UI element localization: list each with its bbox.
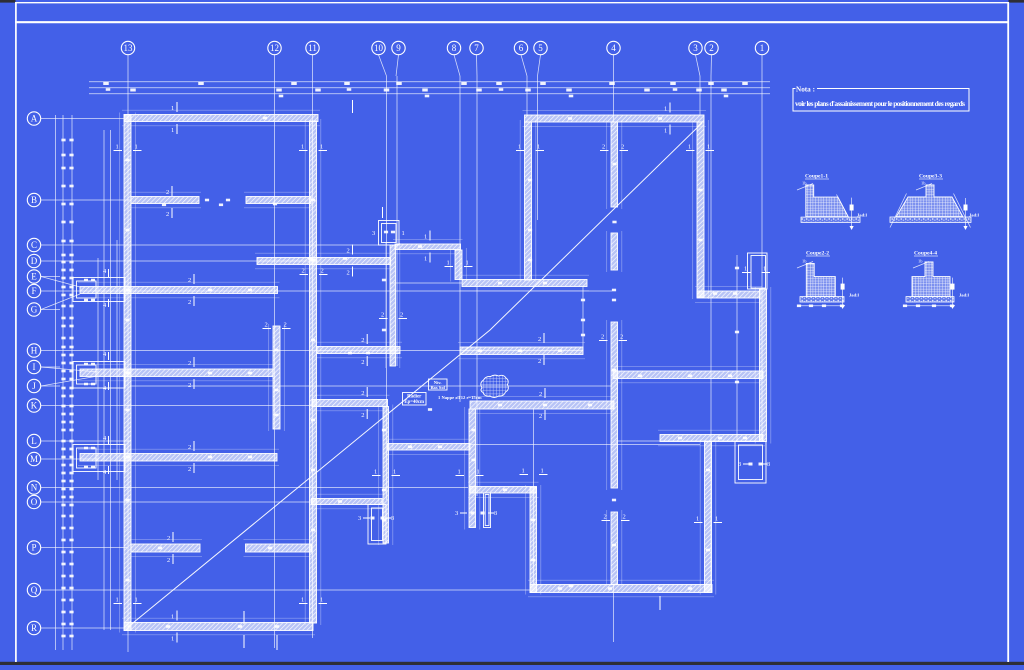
svg-text:1: 1 [171,636,174,643]
svg-text:Coupe1-1: Coupe1-1 [805,174,828,180]
svg-text:3: 3 [358,515,361,522]
svg-text:1: 1 [715,516,718,523]
svg-text:2: 2 [166,189,169,196]
svg-text:Coupe3-3: Coupe3-3 [919,174,942,180]
svg-text:Bas Sol: Bas Sol [430,385,445,390]
svg-text:3: 3 [455,510,458,517]
svg-text:1: 1 [402,230,405,237]
svg-text:1: 1 [537,144,540,151]
svg-text:3: 3 [372,230,375,237]
svg-text:1: 1 [320,597,323,604]
svg-text:J: J [32,381,36,391]
svg-text:2: 2 [347,248,350,255]
svg-text:Jad:l: Jad:l [969,213,980,218]
svg-text:4: 4 [611,43,616,53]
svg-text:1: 1 [171,127,174,134]
svg-text:2: 2 [709,43,714,53]
svg-text:1: 1 [424,256,427,263]
svg-text:2: 2 [188,444,191,451]
svg-text:2: 2 [620,334,623,341]
svg-text:2: 2 [539,391,542,398]
svg-text:2: 2 [321,268,324,275]
svg-text:1: 1 [116,144,119,151]
svg-text:voir les plans d'assainissemen: voir les plans d'assainissement pour le … [795,99,965,108]
svg-text:Coupe4-4: Coupe4-4 [914,251,937,257]
svg-text:2: 2 [167,535,170,542]
svg-text:3: 3 [738,461,741,468]
svg-text:2: 2 [539,413,542,420]
svg-text:9: 9 [396,43,401,53]
svg-text:1: 1 [744,266,747,273]
svg-text:Jad:l: Jad:l [857,213,868,218]
svg-text:7: 7 [474,43,479,53]
svg-text:1: 1 [447,260,450,267]
svg-text:10: 10 [374,43,384,53]
svg-text:1: 1 [477,469,480,476]
svg-text:2: 2 [166,211,169,218]
svg-text:2: 2 [400,312,403,319]
svg-text:H: H [31,346,38,356]
svg-text:2: 2 [188,299,191,306]
svg-text:2: 2 [167,557,170,564]
svg-text:Q: Q [31,585,38,595]
svg-text:1: 1 [374,469,377,476]
svg-text:1: 1 [664,128,667,135]
svg-text:1: 1 [518,144,521,151]
svg-text:2: 2 [538,336,541,343]
svg-text:1: 1 [664,106,667,113]
svg-text:1: 1 [393,469,396,476]
svg-text:F: F [31,286,36,296]
svg-text:B: B [31,195,37,205]
svg-text:1: 1 [116,597,119,604]
svg-text:8: 8 [452,43,457,53]
svg-text:Ep=40cm: Ep=40cm [404,400,424,405]
svg-text:1: 1 [541,468,544,475]
svg-text:2: 2 [623,514,626,521]
svg-text:Coupe2-2: Coupe2-2 [806,251,829,257]
svg-text:N: N [31,483,38,493]
svg-text:1 Nappe øT12 e=15cm: 1 Nappe øT12 e=15cm [438,395,482,400]
svg-text:1: 1 [522,468,525,475]
svg-text:1: 1 [696,516,699,523]
svg-text:2: 2 [188,466,191,473]
svg-text:2: 2 [604,514,607,521]
svg-text:2: 2 [265,322,268,329]
svg-text:3: 3 [693,43,698,53]
svg-text:1: 1 [171,614,174,621]
svg-text:P: P [31,543,36,553]
svg-text:R: R [31,623,37,633]
svg-text:12: 12 [270,43,279,53]
svg-text:1: 1 [458,469,461,476]
svg-text:2: 2 [188,360,191,367]
svg-text:D: D [31,256,38,266]
svg-text:2: 2 [538,358,541,365]
svg-text:2: 2 [302,268,305,275]
svg-text:E: E [31,272,37,282]
svg-text:2: 2 [381,312,384,319]
svg-text:K: K [31,401,38,411]
svg-text:I: I [33,362,36,372]
svg-text:6: 6 [519,43,524,53]
svg-text:1: 1 [424,234,427,241]
svg-text:1: 1 [320,144,323,151]
svg-text:Radier: Radier [407,395,422,400]
svg-text:C: C [31,240,37,250]
svg-text:Jad:l: Jad:l [959,293,970,298]
svg-text:A: A [31,114,38,124]
svg-text:1: 1 [301,597,304,604]
svg-text:2: 2 [621,144,624,151]
svg-text:2: 2 [188,277,191,284]
svg-text:M: M [30,454,38,464]
svg-text:G: G [31,305,38,315]
svg-text:Jad:l: Jad:l [849,293,860,298]
svg-text:2: 2 [602,144,605,151]
svg-text:Nota :: Nota : [796,86,815,94]
svg-text:11: 11 [308,43,317,53]
svg-text:1: 1 [135,597,138,604]
svg-text:2: 2 [284,322,287,329]
svg-text:1: 1 [301,144,304,151]
svg-text:2: 2 [361,390,364,397]
svg-text:2: 2 [361,412,364,419]
svg-text:2: 2 [361,359,364,366]
svg-text:2: 2 [347,270,350,277]
svg-text:2: 2 [361,337,364,344]
svg-text:2: 2 [188,382,191,389]
svg-text:1: 1 [171,105,174,112]
svg-text:1: 1 [763,266,766,273]
svg-text:1: 1 [760,43,765,53]
svg-text:13: 13 [124,43,134,53]
svg-text:O: O [31,497,38,507]
svg-text:L: L [31,436,37,446]
svg-text:5: 5 [538,43,543,53]
svg-text:1: 1 [688,144,691,151]
svg-text:2: 2 [601,334,604,341]
svg-text:1: 1 [135,144,138,151]
svg-text:1: 1 [466,260,469,267]
svg-text:1: 1 [707,144,710,151]
